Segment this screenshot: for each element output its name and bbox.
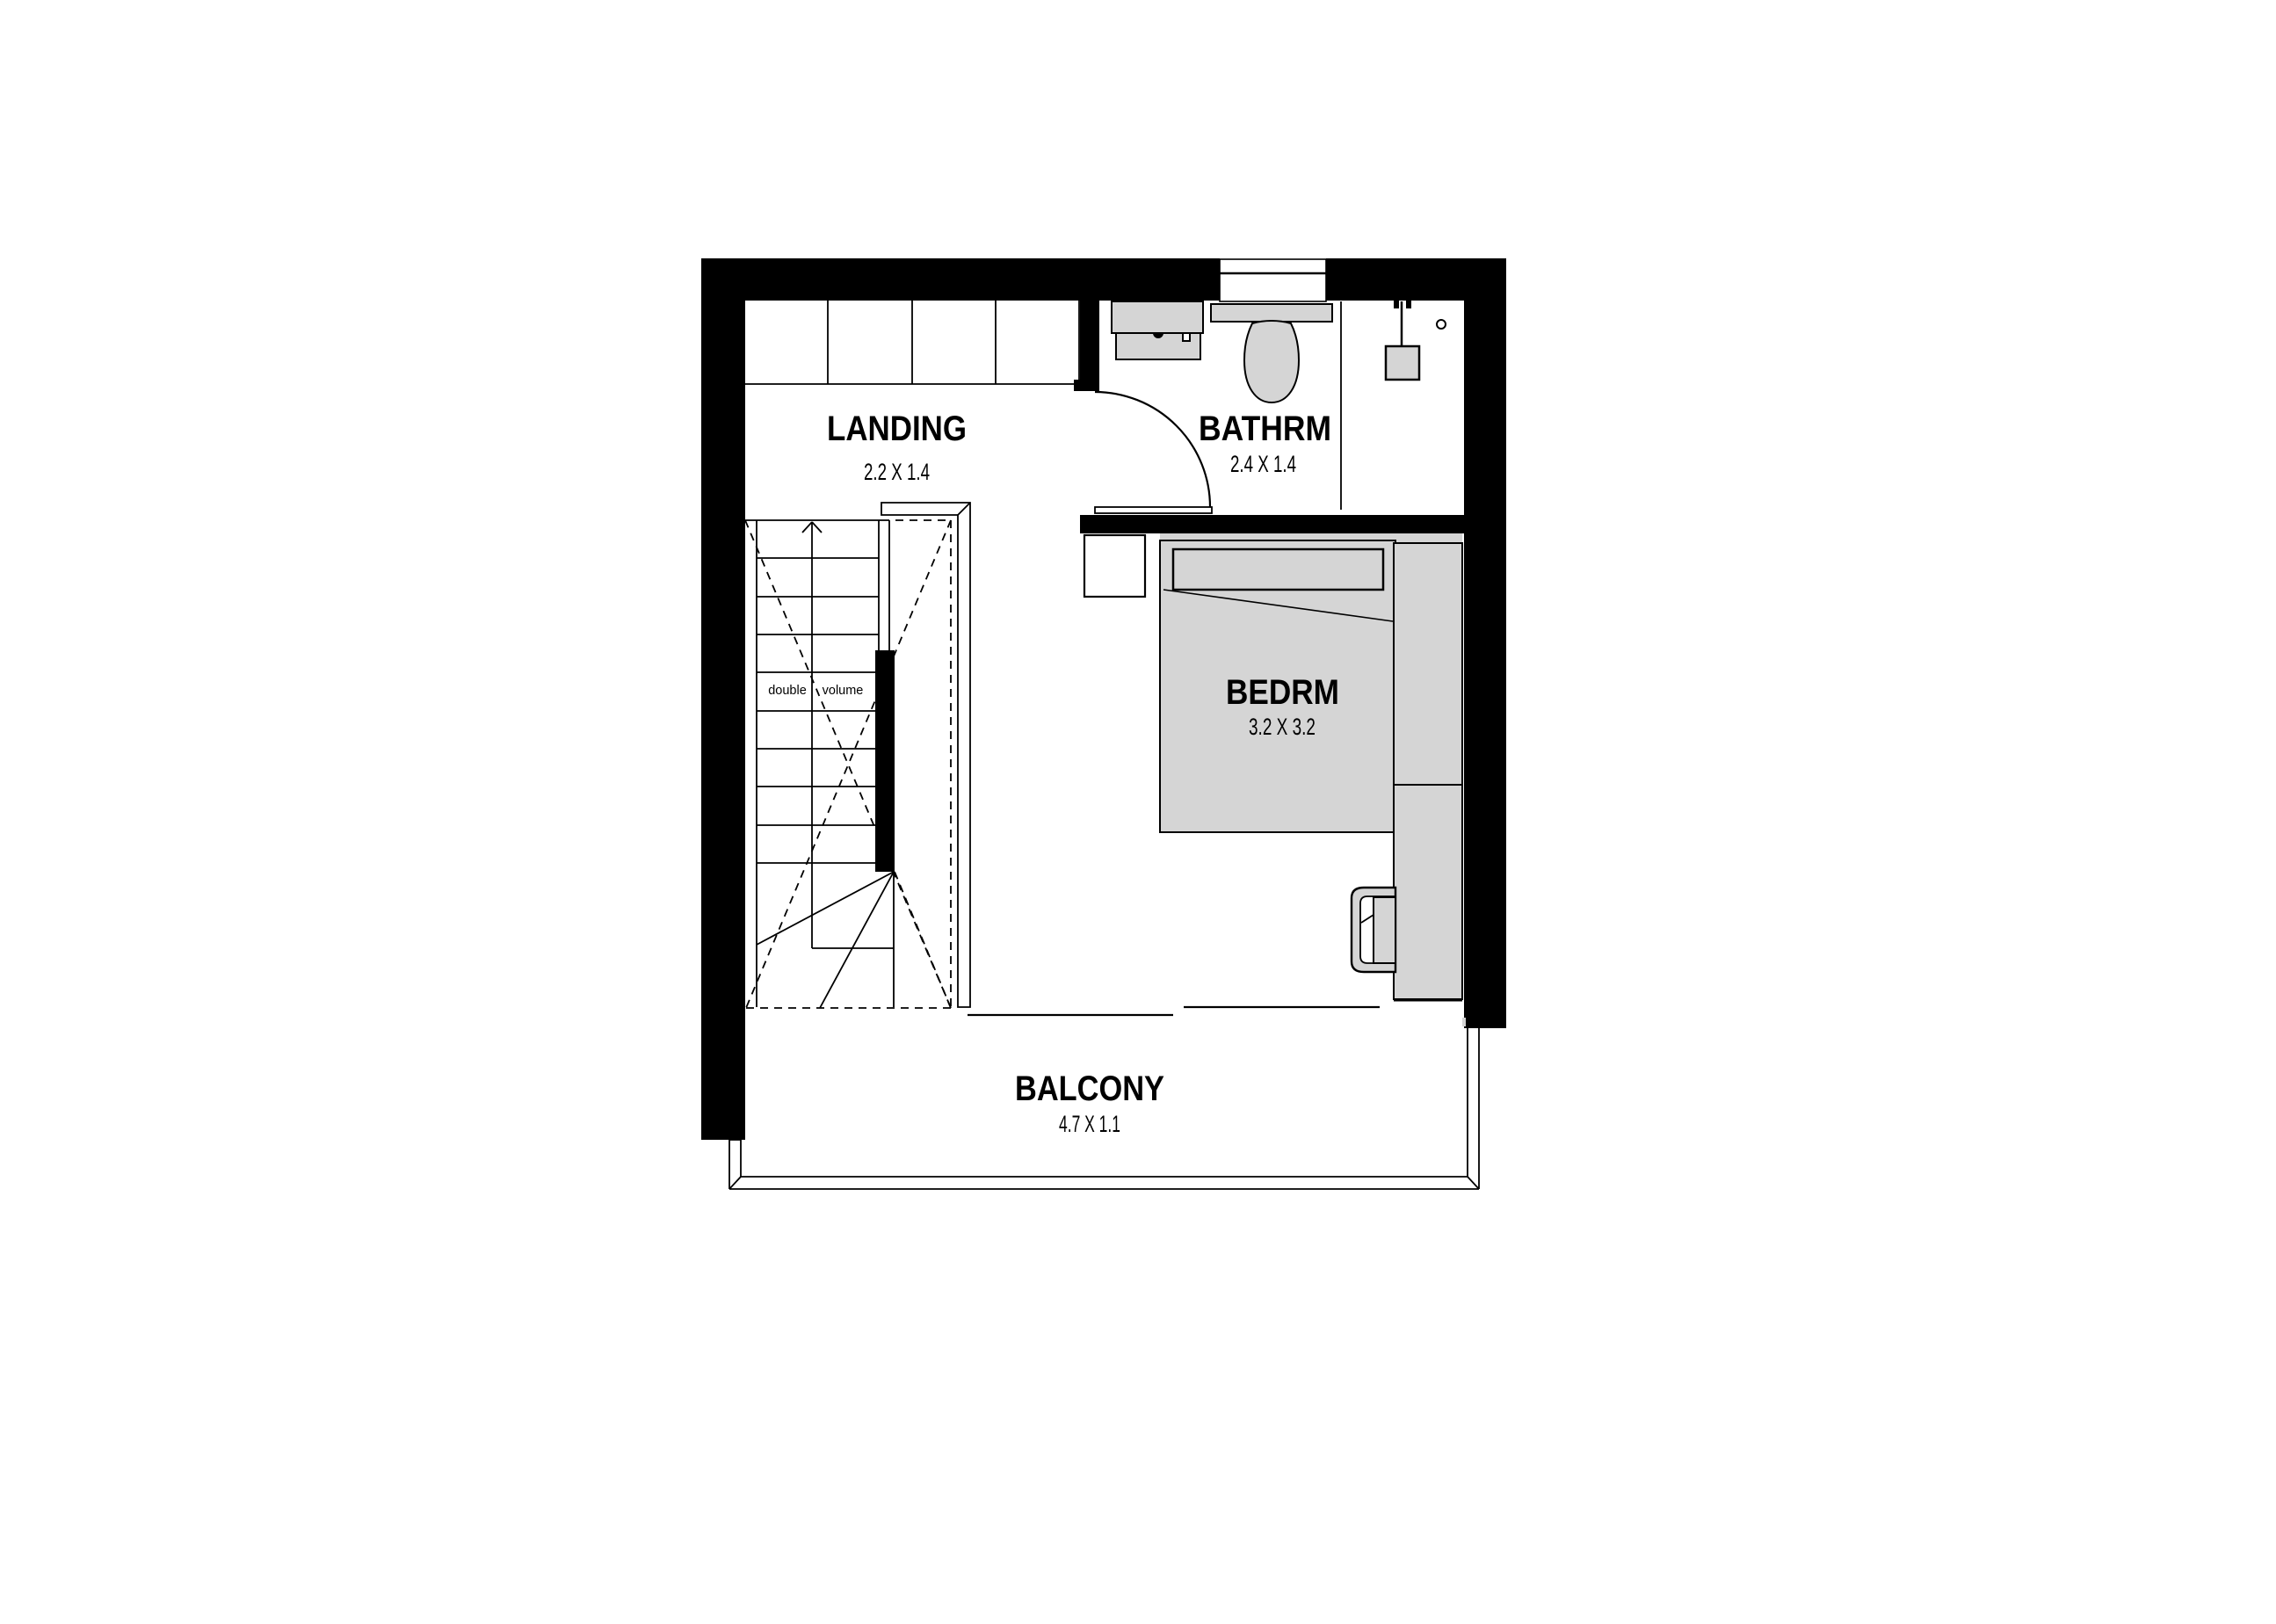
- svg-text:volume: volume: [823, 684, 864, 698]
- svg-text:BATHRM: BATHRM: [1199, 410, 1331, 448]
- svg-text:2.2 X 1.4: 2.2 X 1.4: [864, 459, 930, 485]
- svg-text:LANDING: LANDING: [827, 410, 967, 448]
- svg-text:BALCONY: BALCONY: [1015, 1069, 1164, 1108]
- svg-text:2.4 X 1.4: 2.4 X 1.4: [1230, 451, 1296, 477]
- svg-text:3.2 X 3.2: 3.2 X 3.2: [1249, 714, 1316, 740]
- svg-text:double: double: [768, 684, 807, 698]
- svg-text:BEDRM: BEDRM: [1226, 673, 1339, 712]
- svg-text:4.7 X 1.1: 4.7 X 1.1: [1059, 1111, 1120, 1137]
